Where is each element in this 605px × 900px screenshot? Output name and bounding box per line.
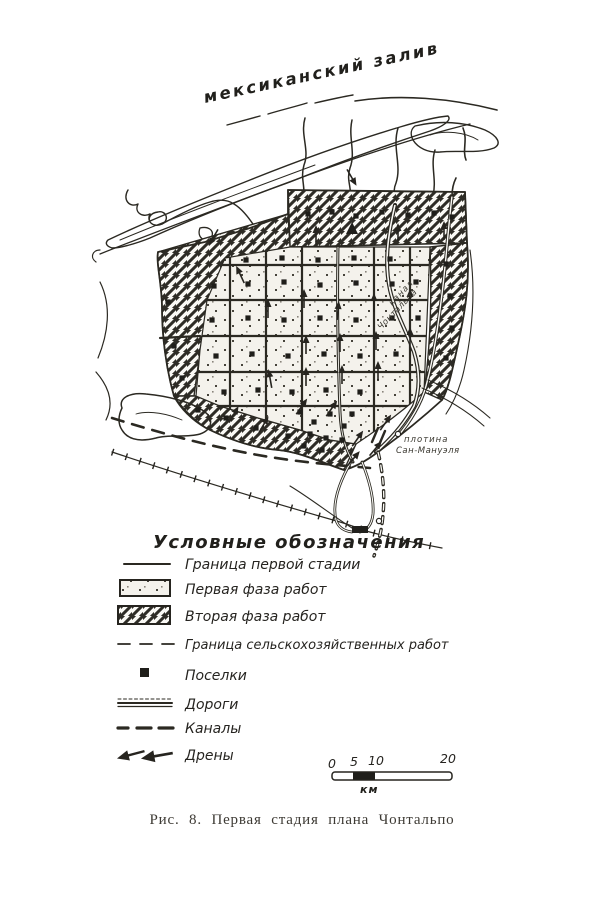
settlement-square-symbol [140,668,149,677]
legend-row: Вторая фаза работ [118,606,326,625]
legend-label: Каналы [185,721,241,737]
legend: Условные обозначения Граница первой стад… [116,532,449,765]
drain-arrows-symbol [116,746,174,764]
scale-tick-20: 20 [440,751,456,766]
scale-tick-0: 0 [328,756,336,771]
legend-row: Каналы [118,721,241,737]
legend-row: Граница сельскохозяйственных работ [118,638,449,653]
dotted-area-symbol [120,580,170,596]
legend-label: Граница первой стадии [185,557,360,573]
legend-row: Дороги [118,697,238,713]
scale-tick-10: 10 [368,753,384,768]
scale-unit-label: км [360,783,378,796]
figure-caption: Рис. 8. Первая стадия плана Чонтальпо [150,812,455,828]
legend-title: Условные обозначения [153,532,425,553]
dam-label-line2: Сан-Мануэля [396,446,460,456]
scale-bar-outline [332,772,452,780]
scale-bar: 0 5 10 20 км [328,751,456,796]
legend-row: Граница первой стадии [124,557,360,573]
road-double-line-symbol [118,699,172,707]
legend-label: Поселки [185,668,247,684]
legend-label: Дороги [184,697,238,713]
sea-label: мексиканский залив [202,38,441,107]
scanned-book-page: мексиканский залив канал Чонтальпа плоти… [0,0,605,900]
dam-label-line1: плотина [404,435,448,445]
scale-bar-filled-segment [353,773,375,780]
scale-tick-5: 5 [350,754,358,769]
map-figure: мексиканский залив канал Чонтальпа плоти… [0,0,605,900]
legend-row: Первая фаза работ [120,580,327,598]
legend-label: Вторая фаза работ [185,609,326,625]
legend-label: Граница сельскохозяйственных работ [185,638,449,653]
legend-row: Дрены [116,746,234,764]
hatched-area-symbol [118,606,170,624]
legend-row: Поселки [140,668,247,684]
legend-label: Дрены [184,748,234,764]
legend-label: Первая фаза работ [185,582,327,598]
